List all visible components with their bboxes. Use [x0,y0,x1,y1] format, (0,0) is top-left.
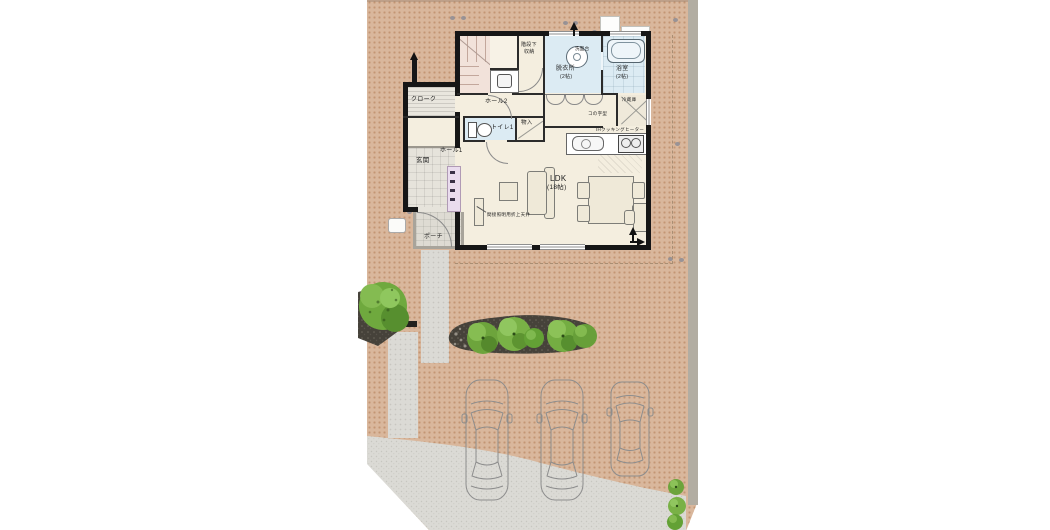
shoe-cabinet-mark [450,189,455,192]
washstand-bowl [497,74,512,88]
partition [517,36,519,70]
pebble [563,21,568,25]
wall-right [646,31,651,250]
label-dressing-name: 脱衣所 [556,66,575,72]
shoe-cabinet-mark [450,171,455,174]
dining-chair [577,182,590,199]
walkway-from-porch [421,250,449,363]
pebble [461,16,466,20]
round-washbasin-drain [573,53,581,61]
window-top-bath [610,31,641,36]
bathtub-inner [611,42,641,59]
site-border-strip [688,0,698,505]
site-top-edge [367,0,698,2]
partition [403,116,459,118]
kitchen-sink-drain [581,139,591,149]
label-porch: ポーチ [424,234,443,240]
partition [515,116,517,142]
partition [490,68,519,70]
ih-burner-1 [621,138,631,148]
low-table [499,182,518,201]
corner-arrow-right [637,238,645,246]
desk-chair [624,210,635,225]
partition [463,116,465,142]
ih-burner-2 [631,138,641,148]
stairs-treads-side [459,62,479,93]
label-entrance: 玄関 [416,158,430,165]
pebble [673,18,678,22]
bath-sliding-door [601,52,603,70]
dining-chair [577,205,590,222]
partition [543,95,545,142]
shoe-cabinet-mark [450,198,455,201]
label-ih-heater: IHクッキングヒーター [596,128,644,133]
wall-left-main [455,31,460,250]
gate-wall [412,60,417,82]
pebble [450,16,455,20]
label-closet-note: コの字型 [588,112,607,117]
label-hall1: ホール1 [440,148,463,154]
sofa-seat [527,171,547,215]
pebble [370,326,375,330]
label-bath-name: 浴室 [616,66,629,72]
kitchen-floor-hatch [598,153,642,173]
gate-arrow-marker [410,52,418,60]
partition [543,36,545,93]
toilet-tank [468,122,477,138]
label-toilet1: トイレ1 [491,125,514,131]
dining-chair [632,182,645,199]
window-right-kitchen [646,99,651,125]
label-under-stairs-2: 収納 [524,50,535,55]
label-under-stairs-1: 階段下 [521,43,537,48]
partition [545,126,603,128]
partition [616,93,618,126]
corner-arrow-right-stem [630,241,638,243]
label-ceiling-note: 間接照明用折上天井 [487,213,530,218]
label-ldk-name: LDK [550,175,566,183]
label-storage: 物入 [521,121,533,127]
label-fridge: 冷蔵庫 [622,98,636,103]
wall-annex-top [403,82,459,87]
toilet-bowl [477,123,492,137]
label-washstand: 洗面台 [575,47,589,52]
meter-box [388,218,406,233]
label-bath-size: (2帖) [616,75,628,80]
label-hall2: ホール2 [485,99,508,105]
pebble [675,142,680,146]
opening-porch-door [418,207,448,212]
walkway-side [388,332,418,438]
site-plan-canvas: 階段下 収納 洗面台 脱衣所 (2帖) 浴室 (2帖) 冷蔵庫 コの字型 IHク… [0,0,1050,530]
label-ldk-size: (18帖) [547,185,567,192]
tv-board [474,198,484,226]
label-cloak: クローク [411,97,436,103]
opening-cloak [455,96,460,112]
under-stairs-storage [490,36,517,68]
window-bottom-1 [487,244,532,250]
wall-annex-left [403,82,408,212]
window-bottom-2 [540,244,585,250]
pebble [679,258,684,262]
top-arrow-stem [573,29,575,36]
label-dressing-size: (2帖) [560,75,572,80]
shoe-cabinet-mark [450,180,455,183]
